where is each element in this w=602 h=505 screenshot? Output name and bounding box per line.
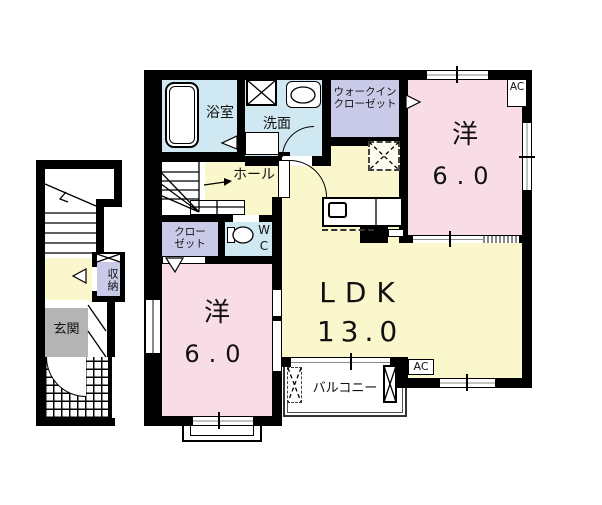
sliding-door-hatch [483, 236, 519, 243]
kitchen-sliding-piece [388, 229, 404, 237]
ldk-floor-3 [408, 243, 522, 378]
window-tick [449, 231, 451, 247]
toilet-tank [227, 227, 235, 243]
window-tick [456, 66, 458, 83]
entrance-door-area [88, 303, 107, 357]
upper-cabinet-dashed-box [368, 141, 400, 171]
ac-unit-lower: AC [408, 359, 434, 375]
annex-wall-top [36, 160, 122, 169]
wall-left [144, 70, 162, 426]
sliding-door-sw-ldk-2 [272, 320, 282, 372]
window-sw-left [146, 300, 160, 353]
annex-inner-right [96, 207, 104, 252]
ldk-size: 13.0 [295, 315, 425, 348]
annex-porch-right [108, 357, 112, 418]
walk-in-closet-label: ウォークイン クローゼット [331, 86, 399, 111]
annex-wall-bottom [36, 418, 115, 426]
hall-label: ホール [226, 167, 282, 184]
wall-hall-ldk-lower [272, 197, 282, 217]
wall-hall-bottom [144, 215, 282, 222]
ldk-label: LDK [300, 276, 424, 309]
bedroom-ne-floor [408, 80, 522, 235]
annex-hook-bottom [96, 199, 122, 207]
floor-plan: AC AC [0, 0, 602, 505]
wall-washroom-wic [322, 70, 331, 162]
wall-closet-wc [218, 222, 225, 256]
window-tick [218, 412, 220, 429]
wall-bath-bottom [144, 152, 245, 162]
bathtub-inner [169, 86, 195, 144]
ac-unit-upper: AC [507, 79, 527, 107]
bedroom-ne-label: 洋 [408, 120, 522, 151]
sliding-door-sw-ldk-1 [272, 289, 282, 317]
bedroom-ne-size: 6.0 [408, 162, 522, 190]
window-tick [519, 156, 535, 158]
annex-landing-floor [45, 258, 96, 302]
kitchen-counter-dashed-edge [322, 229, 374, 231]
window-tick [350, 353, 352, 370]
annex-hook-floor [104, 169, 114, 199]
washroom-door-panel [245, 132, 279, 155]
bath-label: 浴室 [200, 105, 240, 122]
door-gap-wc [233, 215, 259, 222]
window-tick [466, 374, 468, 391]
vanity-counter [286, 81, 321, 108]
wc-label: WC [256, 222, 272, 254]
entrance-label: 玄関 [45, 322, 88, 337]
window-balcony-door [291, 358, 390, 367]
storage-x-strip [97, 254, 120, 262]
washroom-label: 洗面 [257, 116, 297, 133]
washing-machine-pan [246, 79, 277, 106]
ldk-floor-5 [282, 197, 290, 357]
wall-right [522, 70, 532, 388]
bedroom-sw-label: 洋 [162, 298, 272, 329]
sliding-door-ne-ldk [413, 236, 483, 243]
window-sw-bottom [193, 417, 253, 425]
balcony-label: バルコニー [283, 381, 407, 396]
annex-wall-below-storage [107, 302, 115, 357]
stairs-landing [190, 200, 245, 215]
kitchen-sink [328, 202, 347, 218]
closet-label: クロー ゼット [162, 226, 218, 251]
sliding-door-closet [162, 256, 206, 264]
annex-wall-left [36, 160, 45, 426]
ac-lower-label: AC [409, 360, 433, 374]
bedroom-sw-size: 6.0 [162, 340, 272, 368]
ac-upper-label: AC [508, 81, 526, 93]
storage-label: 収納 [99, 264, 118, 295]
annex-threshold [45, 300, 88, 308]
